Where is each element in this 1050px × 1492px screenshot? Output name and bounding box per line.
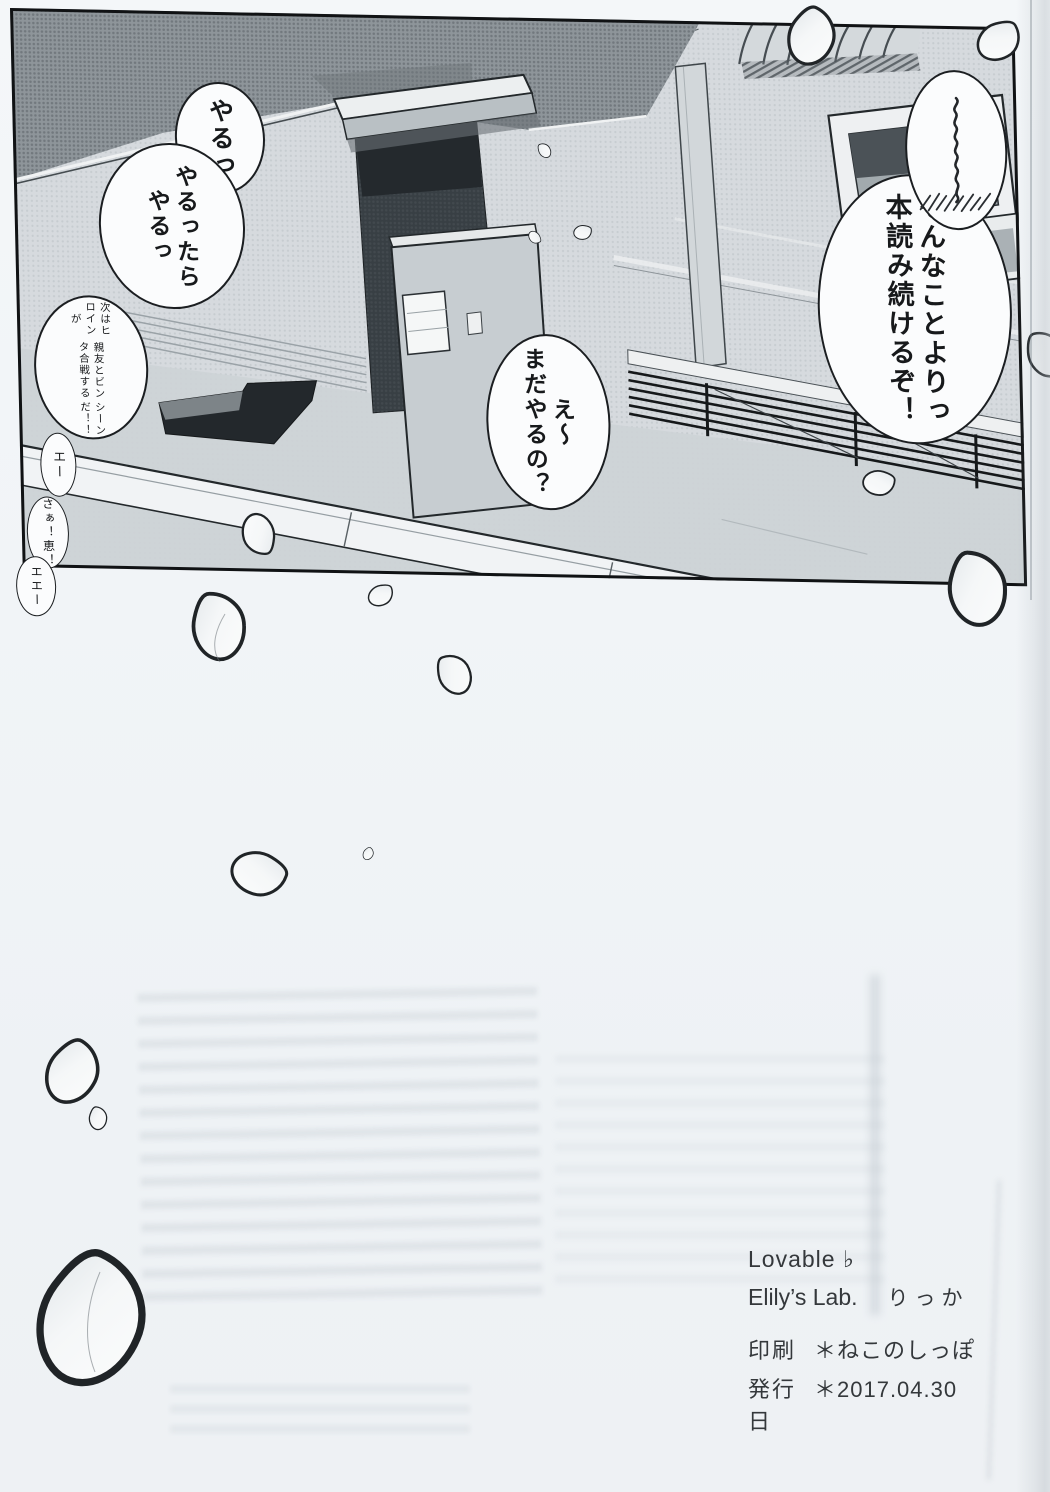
petal xyxy=(365,580,398,611)
petal xyxy=(230,851,288,897)
handwritten-col-1: 次はヒロインが xyxy=(68,297,113,340)
hatch-marks-icon xyxy=(918,189,997,212)
publish-date-value: ＊2017.04.30 xyxy=(814,1372,957,1436)
print-label: 印刷 xyxy=(748,1333,814,1365)
author-name: りっか xyxy=(888,1282,969,1312)
petal xyxy=(185,587,252,665)
handwritten-col-3: シーンだ！！ xyxy=(77,401,107,438)
publish-date-label: 発行日 xyxy=(748,1372,814,1436)
showthrough-text-block xyxy=(137,987,543,1314)
squiggle-mark-icon xyxy=(942,96,970,204)
print-value: ＊ねこのしっぽ xyxy=(814,1333,975,1365)
petal xyxy=(40,1034,106,1110)
handwritten-col-2: 親友とビンタ合戦する xyxy=(76,340,107,401)
petal xyxy=(430,648,479,700)
petal xyxy=(31,1245,152,1391)
page-edge-line xyxy=(1030,0,1032,600)
scanned-page: やるっ やるったら やるっ 次はヒロインが 親友とビンタ合戦する シーンだ！！ … xyxy=(0,0,1050,1492)
manga-panel: やるっ やるったら やるっ 次はヒロインが 親友とビンタ合戦する シーンだ！！ … xyxy=(10,8,1027,586)
showthrough-text-block xyxy=(170,1385,470,1440)
circle-name: Elily’s Lab. xyxy=(748,1284,858,1311)
petal xyxy=(362,846,376,861)
petal xyxy=(88,1106,108,1131)
